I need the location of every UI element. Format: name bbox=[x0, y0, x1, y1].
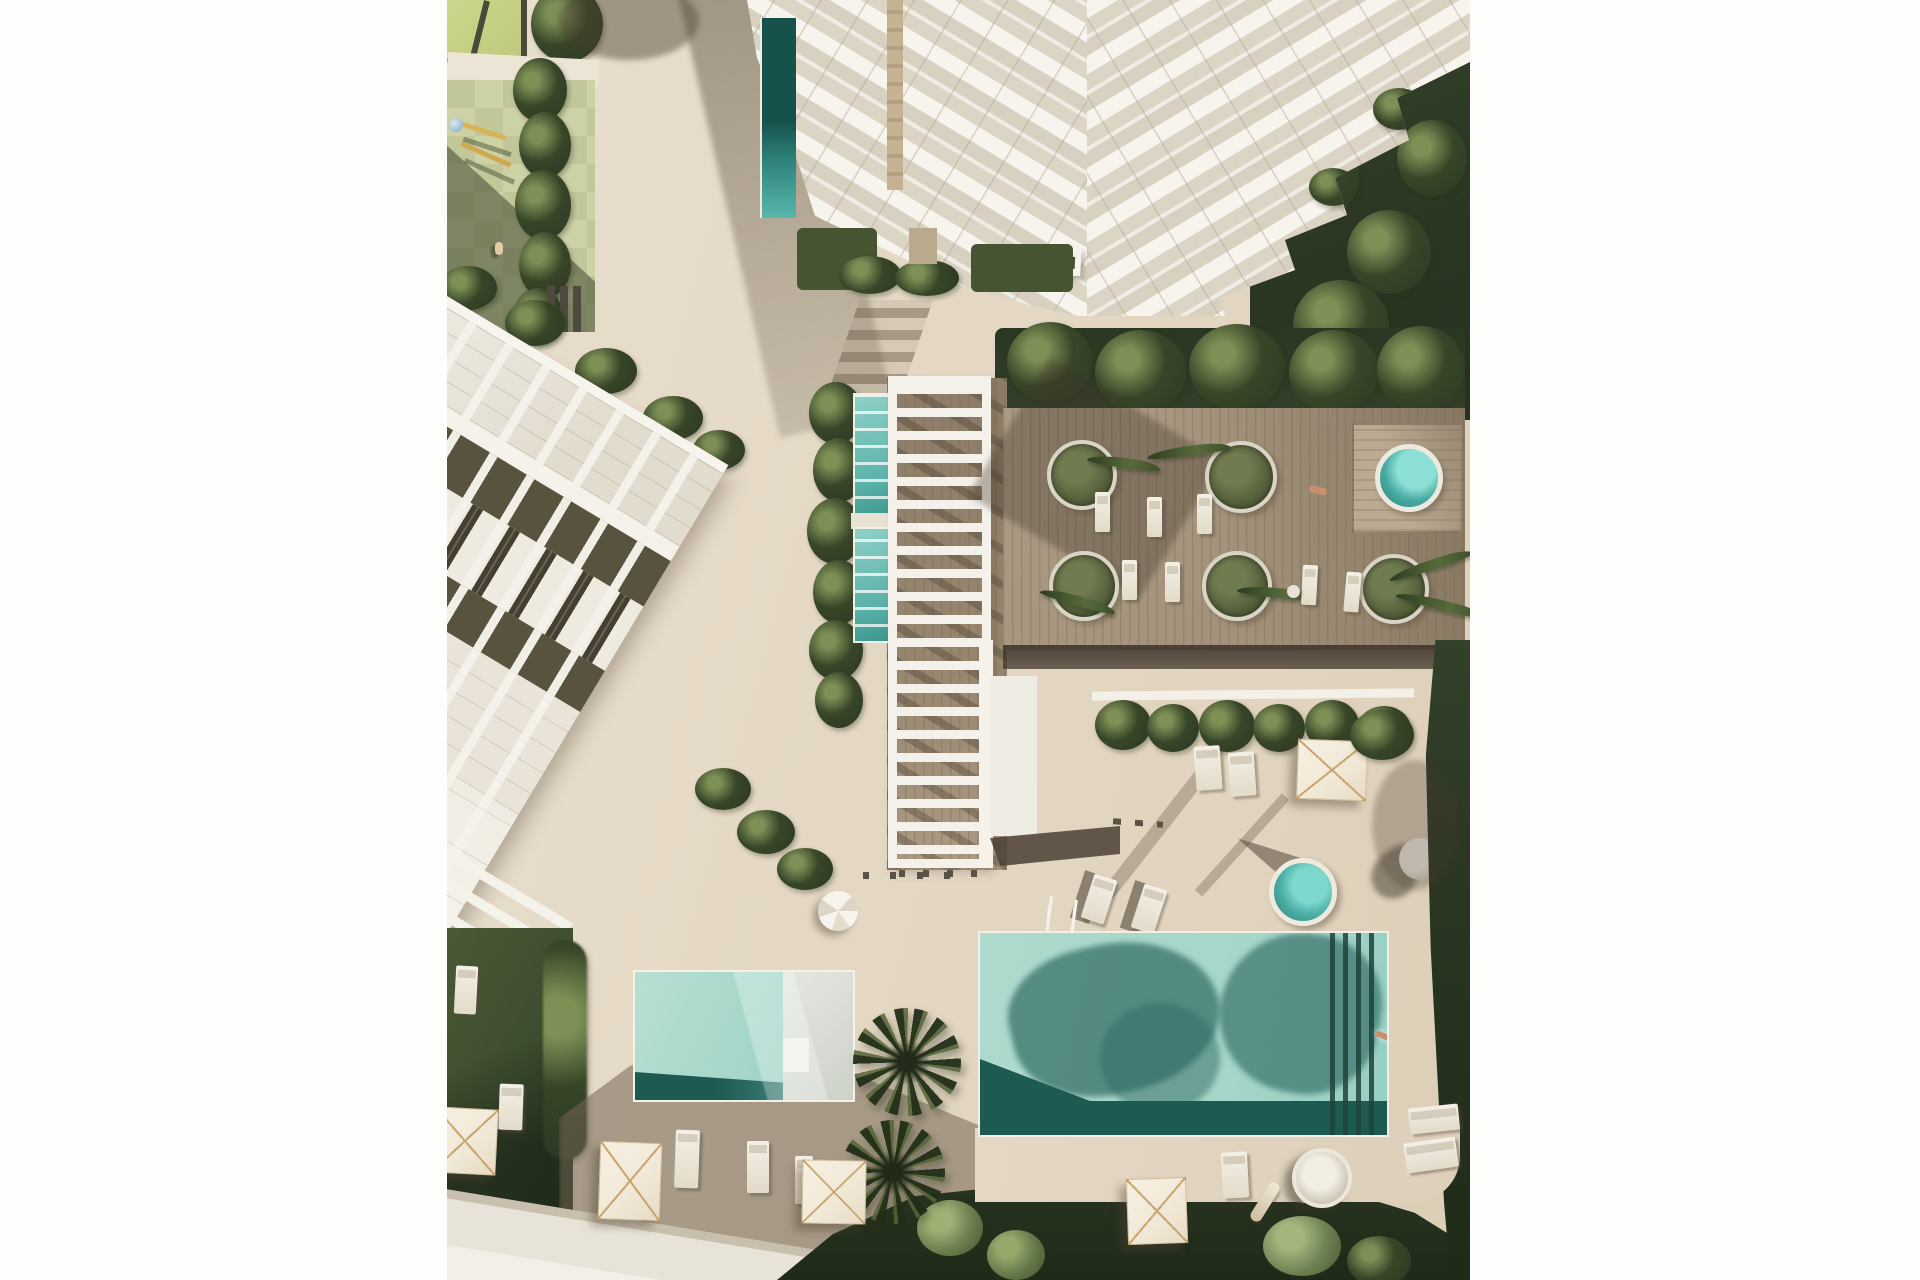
patio-umbrella bbox=[598, 1141, 663, 1221]
lounger bbox=[747, 1141, 769, 1193]
round-planter bbox=[1202, 551, 1272, 621]
deck-lounger bbox=[1122, 560, 1137, 600]
lap-pool-upper bbox=[855, 395, 891, 513]
kids-pool bbox=[635, 972, 853, 1100]
base-deck-strip bbox=[909, 228, 937, 264]
lane-line bbox=[1330, 933, 1335, 1135]
main-pool bbox=[980, 933, 1387, 1135]
tree-shadow bbox=[1372, 760, 1458, 890]
deck-tree bbox=[1189, 324, 1285, 410]
patio-umbrella bbox=[1126, 1177, 1188, 1245]
lounger bbox=[1221, 1151, 1249, 1198]
tower-lap-pool bbox=[760, 18, 796, 218]
pool-terrace bbox=[975, 1128, 1460, 1202]
lane-line bbox=[1356, 933, 1361, 1135]
townhouse-building bbox=[447, 290, 728, 945]
kids-pool-light-shaft bbox=[635, 972, 853, 1100]
lane-line bbox=[1369, 933, 1374, 1135]
edge-plants bbox=[695, 768, 751, 810]
edge-plants bbox=[737, 810, 795, 854]
lawn-lounger bbox=[498, 1084, 524, 1131]
low-wall bbox=[1092, 688, 1414, 700]
lap-pool-lower bbox=[855, 529, 891, 641]
tower-base-lawn bbox=[971, 244, 1073, 292]
site-plan-scene bbox=[447, 0, 1470, 1280]
play-dome bbox=[449, 118, 463, 132]
deck-edge-shadow bbox=[1003, 645, 1465, 669]
deck-lounger bbox=[1147, 497, 1162, 537]
white-slab bbox=[991, 676, 1037, 836]
pergola-structure bbox=[888, 376, 991, 868]
papasan-chair bbox=[1292, 1148, 1352, 1208]
garden-tree bbox=[1347, 210, 1431, 294]
pool-shadow-band bbox=[980, 1101, 1387, 1135]
edge-plants bbox=[777, 848, 833, 890]
hedge-row bbox=[1095, 700, 1151, 750]
left-margin bbox=[0, 0, 447, 1280]
lounger bbox=[1227, 751, 1256, 797]
lounger bbox=[674, 1130, 700, 1189]
round-umbrella bbox=[818, 891, 858, 931]
pool-ladder bbox=[1046, 905, 1077, 934]
deck-lounger bbox=[1197, 494, 1212, 534]
right-margin bbox=[1470, 0, 1920, 1280]
lounger bbox=[1193, 745, 1222, 791]
deck-tree bbox=[1377, 326, 1465, 412]
patio-umbrella bbox=[801, 1159, 866, 1224]
lawn-umbrella bbox=[447, 1106, 499, 1175]
lounger bbox=[1408, 1103, 1460, 1134]
garden-bush bbox=[1350, 710, 1414, 760]
person-swimming bbox=[1374, 1030, 1387, 1042]
deck-lounger bbox=[1165, 562, 1180, 602]
palm-tree bbox=[853, 1008, 961, 1116]
footing-dots bbox=[863, 872, 953, 879]
plunge-pool bbox=[1269, 858, 1337, 926]
veg-leaf-cluster bbox=[1263, 1216, 1341, 1276]
pergola-hedge bbox=[815, 672, 863, 728]
hedge-row bbox=[1147, 704, 1199, 752]
side-table bbox=[1287, 585, 1300, 598]
lane-line bbox=[1343, 933, 1348, 1135]
veg-leaf-cluster bbox=[987, 1230, 1045, 1280]
jacuzzi bbox=[1375, 444, 1443, 512]
hedge-row bbox=[1199, 700, 1255, 752]
deck-lounger bbox=[1301, 565, 1318, 606]
lawn-lounger bbox=[454, 965, 478, 1014]
hedge-column bbox=[519, 112, 571, 178]
deck-lounger bbox=[1095, 492, 1110, 532]
deck-tree bbox=[1289, 330, 1379, 414]
person-child bbox=[495, 242, 503, 255]
garden-tree bbox=[1397, 120, 1467, 196]
render-canvas: Top-down architectural rendering of a be… bbox=[0, 0, 1920, 1280]
base-hedge bbox=[895, 260, 959, 296]
tower-wood-mullion bbox=[887, 0, 903, 190]
palm-shadow-on-water bbox=[1100, 1003, 1220, 1113]
veg-leaf-cluster bbox=[1347, 1236, 1411, 1280]
base-hedge bbox=[839, 256, 901, 294]
hedge-column bbox=[515, 170, 571, 240]
